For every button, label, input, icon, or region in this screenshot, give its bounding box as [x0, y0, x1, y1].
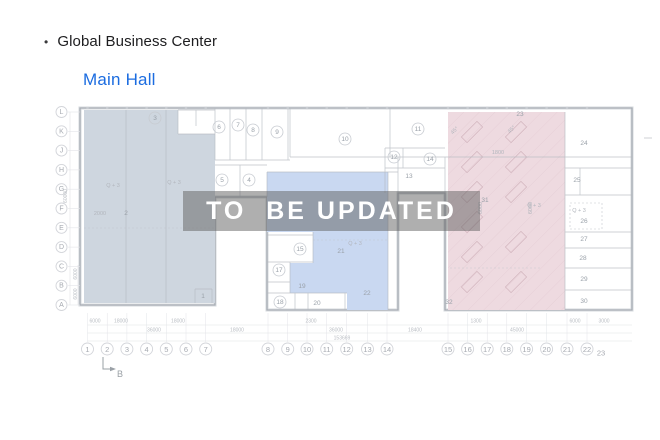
col-axis-label: 1 [85, 345, 89, 354]
row-axis-label: K [59, 128, 64, 135]
dimension-label: 18000 [171, 319, 185, 325]
room-label: 32 [445, 299, 453, 306]
room-label: 20 [313, 300, 321, 307]
col-axis-label: 3 [125, 345, 129, 354]
row-axis-label: C [59, 263, 64, 270]
column-marker [267, 107, 269, 109]
column-marker [386, 107, 388, 109]
section-marker: B [103, 357, 123, 379]
dimension-label: 45000 [510, 328, 524, 334]
room-label: 5 [220, 177, 224, 184]
column-marker [346, 107, 348, 109]
annotation-label: 2000 [94, 211, 106, 217]
col-axis-label: 2 [105, 345, 109, 354]
room-label: 4 [247, 177, 251, 184]
column-marker [205, 107, 207, 109]
column-marker [306, 107, 308, 109]
col-axis-label: 4 [145, 345, 149, 354]
column-marker [466, 107, 468, 109]
col-axis-label: 15 [444, 345, 452, 354]
room-label: 25 [573, 177, 581, 184]
column-marker [545, 107, 547, 109]
row-axis-label: E [59, 225, 64, 232]
column-marker [145, 107, 147, 109]
col-axis-label: 8 [266, 345, 270, 354]
row-axis-label: L [60, 109, 64, 116]
annotation-label: Q + 3 [572, 208, 586, 214]
col-axis-label: 6 [184, 345, 188, 354]
room-label: 9 [275, 129, 279, 136]
row-axis-label: D [59, 244, 64, 251]
room-label: 18 [276, 299, 284, 306]
dimension-label: 6000 [73, 288, 79, 299]
room-label: 26 [580, 218, 588, 225]
dimension-label: 60000 [63, 189, 69, 203]
col-axis-label: 16 [463, 345, 471, 354]
dimension-label: 18000 [230, 328, 244, 334]
room-label: 11 [415, 126, 422, 133]
room-label: 17 [275, 267, 283, 274]
column-marker [86, 107, 88, 109]
row-axis-label: B [59, 283, 64, 290]
row-axis-label: J [60, 148, 64, 155]
col-axis-label: 23 [597, 349, 605, 358]
dimension-label: 36000 [329, 328, 343, 334]
room-label: 3 [153, 115, 157, 122]
column-marker [566, 107, 568, 109]
column-marker [586, 107, 588, 109]
column-marker [165, 107, 167, 109]
column-marker [506, 107, 508, 109]
room-label: 22 [363, 290, 371, 297]
room-label: 6 [217, 124, 221, 131]
room-label: 28 [579, 255, 587, 262]
col-axis-label: 14 [383, 345, 391, 354]
room-label: 14 [426, 156, 434, 163]
col-axis-label: 12 [343, 345, 351, 354]
column-marker [126, 107, 128, 109]
annotation-label: 1800 [492, 150, 504, 156]
room-label: 29 [580, 276, 588, 283]
col-axis-label: 17 [483, 345, 491, 354]
col-axis-label: 21 [563, 345, 571, 354]
row-axis-label: F [59, 206, 63, 213]
room-label: 21 [337, 248, 345, 255]
column-marker [287, 107, 289, 109]
dimension-label: 2300 [305, 319, 316, 325]
annotation-label: Q + 3 [167, 180, 181, 186]
room-label: 23 [516, 111, 524, 118]
room-label: 1 [201, 293, 205, 300]
col-axis-label: 20 [542, 345, 550, 354]
column-marker [366, 107, 368, 109]
room-label: 30 [580, 298, 588, 305]
column-marker [486, 107, 488, 109]
room-label: 24 [580, 140, 588, 147]
dimension-label: 3000 [598, 319, 609, 325]
col-axis-label: 11 [323, 345, 331, 354]
col-axis-label: 9 [286, 345, 290, 354]
column-marker [106, 107, 108, 109]
row-axis-label: A [59, 302, 64, 309]
col-axis-label: 19 [522, 345, 530, 354]
room-label: 10 [341, 136, 349, 143]
section-marker-label: B [117, 369, 123, 379]
col-axis-label: 5 [164, 345, 168, 354]
room-label: 2 [124, 210, 128, 217]
col-axis-label: 13 [363, 345, 371, 354]
dimension-label: 1300 [470, 319, 481, 325]
room-label: 15 [296, 246, 304, 253]
column-marker [447, 107, 449, 109]
annotation-label: Q + 3 [348, 241, 362, 247]
room-label: 27 [580, 236, 588, 243]
dimension-label: 6000 [569, 319, 580, 325]
col-axis-label: 10 [303, 345, 311, 354]
room-label: 13 [405, 173, 413, 180]
column-marker [525, 107, 527, 109]
column-marker [326, 107, 328, 109]
dimension-label: 153669 [334, 336, 351, 342]
col-axis-label: 18 [503, 345, 511, 354]
column-marker [185, 107, 187, 109]
col-axis-label: 7 [204, 345, 208, 354]
room-label: 7 [236, 122, 240, 129]
annotation-label: 6000 [528, 202, 534, 214]
room-label: 8 [251, 127, 255, 134]
annotation-label: Q + 3 [106, 183, 120, 189]
room-label: 12 [390, 154, 398, 161]
dimension-label: 36000 [147, 328, 161, 334]
dimension-label: 18000 [114, 319, 128, 325]
row-axis-label: H [59, 167, 64, 174]
watermark-banner: TO BE UPDATED [183, 191, 480, 231]
room-label: 19 [298, 283, 306, 290]
dimension-label: 6000 [89, 319, 100, 325]
dimension-label: 6000 [73, 268, 79, 279]
dimension-label: 18400 [408, 328, 422, 334]
col-axis-label: 22 [583, 345, 591, 354]
